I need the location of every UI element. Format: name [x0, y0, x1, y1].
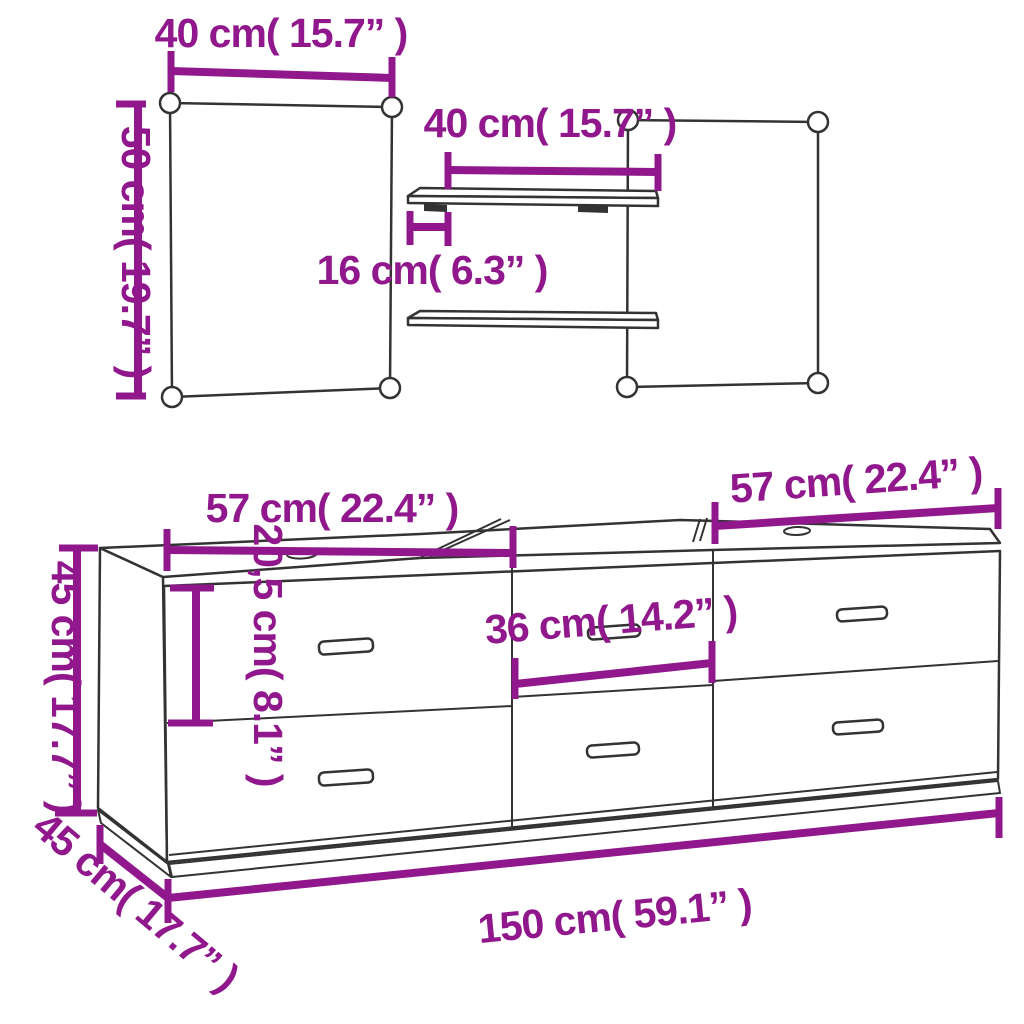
cabinet-side-face	[98, 548, 167, 862]
corner-dot	[808, 112, 828, 132]
cabinet-height-label: 45 cm( 17.7” )	[43, 561, 89, 814]
corner-dot	[160, 93, 180, 113]
corner-dot	[162, 387, 182, 407]
corner-dot	[808, 373, 828, 393]
drawer-handle	[319, 769, 374, 786]
drawer-handle	[587, 742, 640, 758]
cabinet-right-width-label: 57 cm( 22.4” )	[728, 448, 983, 512]
drawer-handle	[837, 606, 888, 621]
right-wall-panel	[617, 110, 828, 397]
corner-dot	[617, 377, 637, 397]
shelf-width-label: 40 cm( 15.7” )	[424, 100, 677, 146]
drawer-handle	[833, 719, 884, 734]
panel-width-label: 40 cm( 15.7” )	[155, 10, 408, 56]
dimension-cabinet-height: 45 cm( 17.7” )	[43, 548, 98, 813]
wall-shelf-bottom	[408, 311, 658, 328]
dimension-diagram: 40 cm( 15.7” ) 50 cm( 19.7” ) 40 cm( 15.…	[0, 0, 1024, 1024]
corner-dot	[382, 97, 402, 117]
shelf-bracket	[424, 204, 447, 212]
shelf-depth-label: 16 cm( 6.3” )	[317, 247, 548, 293]
cabinet-total-width-label: 150 cm( 59.1” )	[476, 880, 754, 952]
diagram-canvas: 40 cm( 15.7” ) 50 cm( 19.7” ) 40 cm( 15.…	[0, 0, 1024, 1024]
panel-height-label: 50 cm( 19.7” )	[113, 126, 159, 379]
wall-shelf-top	[408, 188, 658, 213]
corner-dot	[380, 378, 400, 398]
drawer-handle	[319, 638, 374, 655]
dimension-panel-width: 40 cm( 15.7” )	[155, 10, 408, 97]
drawer-height-label: 20,5 cm( 8.1” )	[245, 523, 291, 786]
dimension-panel-height: 50 cm( 19.7” )	[113, 104, 159, 396]
shelf-bracket	[578, 205, 608, 213]
cabinet-left-width-label: 57 cm( 22.4” )	[206, 485, 459, 531]
